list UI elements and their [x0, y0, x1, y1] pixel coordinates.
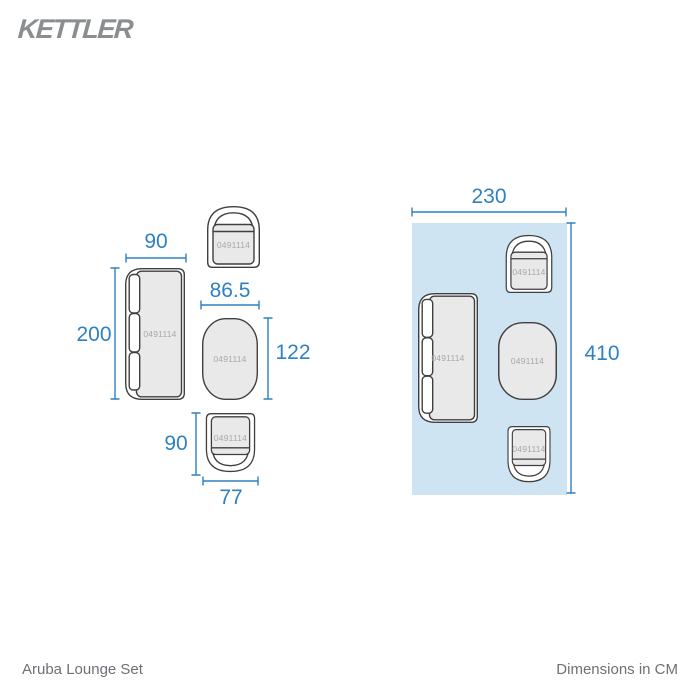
plan-width-dimension-line [412, 208, 566, 217]
table-width-value: 86.5 [210, 279, 251, 302]
plan-armchair-2-code: 0491114 [512, 444, 545, 454]
plan-length-dimension-line [567, 223, 576, 493]
sofa-width-dimension-line [126, 254, 186, 263]
sofa-code: 0491114 [143, 329, 176, 339]
table-length-dimension-line [264, 318, 273, 399]
armchair-1-code: 0491114 [217, 240, 250, 250]
sofa-length-value: 200 [76, 323, 111, 346]
dimension-diagram: 0491114 0491114 0491114 0491114 90 200 8… [0, 0, 700, 700]
armchair-2-code: 0491114 [214, 433, 247, 443]
plan-length-value: 410 [584, 342, 619, 365]
plan-width-value: 230 [471, 185, 506, 208]
product-name: Aruba Lounge Set [22, 661, 143, 678]
plan-table-code: 0491114 [511, 356, 544, 366]
armchair-1-top-view [208, 207, 260, 268]
units-note: Dimensions in CM [556, 661, 678, 678]
armchair-width-dimension-line [203, 477, 258, 486]
sofa-width-value: 90 [144, 230, 167, 253]
armchair-depth-value: 90 [164, 432, 187, 455]
plan-armchair-1 [506, 235, 551, 292]
plan-armchair-1-code: 0491114 [512, 267, 545, 277]
armchair-depth-dimension-line [192, 413, 201, 475]
table-code: 0491114 [213, 354, 246, 364]
table-length-value: 122 [275, 341, 310, 364]
sofa-length-dimension-line [111, 268, 120, 399]
armchair-width-value: 77 [219, 486, 242, 509]
plan-armchair-2 [508, 427, 550, 482]
plan-sofa-code: 0491114 [431, 353, 464, 363]
